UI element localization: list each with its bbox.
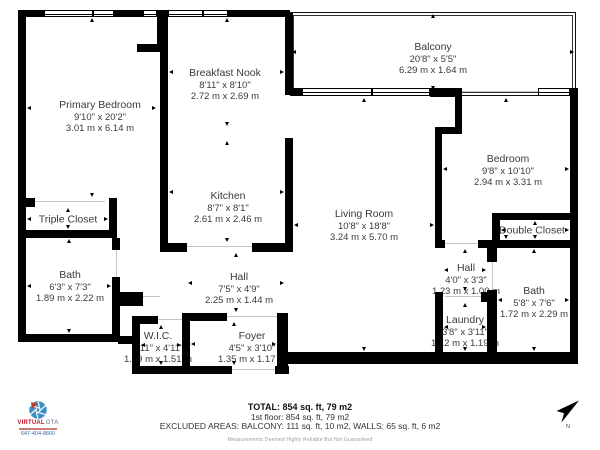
measure-arrow [362,347,366,351]
measure-arrow [498,298,502,302]
measure-arrow [177,343,181,347]
window-divider [202,10,204,17]
floor-plan-page: Primary Bedroom9'10" x 20'2"3.01 m x 6.1… [0,0,600,450]
wall [435,292,443,354]
measure-arrow [159,361,163,365]
measure-arrow [234,253,238,257]
logo-phone-number: 647-404-8800 [12,431,64,437]
wall [182,313,227,321]
measure-arrow [431,14,435,18]
wall [442,127,462,134]
measure-arrow [533,235,537,239]
room-text: 2.61 m x 2.46 m [194,214,262,226]
window-glass [302,88,430,96]
wall [115,292,143,306]
measure-arrow [280,190,284,194]
wall [290,88,302,96]
measure-arrow [280,70,284,74]
door-opening [462,91,538,92]
measure-arrow [443,167,447,171]
summary-footer: TOTAL: 854 sq. ft, 79 m2 1st floor: 854 … [0,403,600,443]
measure-arrow [27,106,31,110]
room-text: 9'10" x 20'2" [59,111,141,123]
door-opening [158,319,182,320]
wall [112,238,120,250]
room-text: 1.72 m x 2.29 m [500,309,568,321]
measure-arrow [504,235,508,239]
measure-arrow [169,190,173,194]
wall [132,316,158,324]
room-text: 4'0" x 3'3" [432,274,500,286]
measure-arrow [362,98,366,102]
measure-arrow [294,223,298,227]
room-text: Bath [36,270,104,282]
measure-arrow [532,347,536,351]
room-text: 8'11" x 8'10" [189,79,261,91]
wall [487,248,497,262]
measure-arrow [107,284,111,288]
measure-arrow [463,287,467,291]
room-label-bath-1: Bath6'3" x 7'3"1.89 m x 2.22 m [36,270,104,305]
measure-arrow [504,98,508,102]
window-glass [143,10,157,17]
wall [182,313,190,374]
wall [18,10,26,342]
measure-arrow [191,342,195,346]
measure-arrow [272,342,276,346]
room-text: 2.25 m x 1.44 m [205,295,273,307]
wall [18,334,120,342]
logo-brand-secondary: GTA [46,420,59,426]
measure-arrow [431,86,435,90]
measure-arrow [67,239,71,243]
door-opening [232,369,275,370]
measure-arrow [104,217,108,221]
room-label-foyer: Foyer4'5" x 3'10"1.35 m x 1.17 m [218,331,286,366]
room-text: 5'8" x 7'6" [500,297,568,309]
measure-arrow [141,343,145,347]
door-opening [116,250,117,277]
measure-arrow [169,70,173,74]
room-label-living-room: Living Room10'8" x 18'8"3.24 m x 5.70 m [330,209,398,244]
measure-arrow [225,238,229,242]
logo-brand-primary: VIRTUAL [17,420,44,426]
measure-arrow [67,329,71,333]
measure-arrow [225,122,229,126]
floor-plan-drawing: Primary Bedroom9'10" x 20'2"3.01 m x 6.1… [0,0,600,450]
room-text: Balcony [399,42,467,54]
wall [283,352,578,364]
wall [570,88,578,364]
wall [18,230,117,238]
door-opening [445,243,478,244]
room-label-bedroom: Bedroom9'8" x 10'10"2.94 m x 3.31 m [474,154,542,189]
door-opening [143,296,160,297]
room-text: Living Room [330,209,398,221]
door-opening [492,262,493,290]
measure-arrow [565,228,569,232]
room-label-hall-1: Hall7'5" x 4'9"2.25 m x 1.44 m [205,272,273,307]
measure-arrow [225,18,229,22]
room-text: 3.01 m x 6.14 m [59,123,141,135]
measure-arrow [66,225,70,229]
wall [137,44,168,52]
measure-arrow [90,193,94,197]
door-opening [35,201,105,202]
door-opening [227,316,277,317]
room-text: 2.72 m x 2.69 m [189,91,261,103]
measure-arrow [482,325,486,329]
room-label-breakfast-nook: Breakfast Nook8'11" x 8'10"2.72 m x 2.69… [189,68,261,103]
room-text: 3.24 m x 5.70 m [330,232,398,244]
window-divider [371,88,373,96]
measure-arrow [27,284,31,288]
wall [487,290,497,354]
room-text: 10'8" x 18'8" [330,220,398,232]
room-label-balcony: Balcony20'8" x 5'5"6.29 m x 1.64 m [399,42,467,77]
room-text: 6.29 m x 1.64 m [399,65,467,77]
measure-arrow [188,281,192,285]
wall [25,198,35,207]
logo-tagline-rule [19,428,57,430]
measure-arrow [234,308,238,312]
room-text: Bath [500,286,568,298]
measure-arrow [90,18,94,22]
measure-arrow [482,268,486,272]
room-text: Bedroom [474,154,542,166]
room-text: 2.94 m x 3.31 m [474,177,542,189]
measure-arrow [27,217,31,221]
room-text: 9'8" x 10'10" [474,165,542,177]
measure-arrow [570,50,574,54]
disclaimer-text: Measurements Deemed Highly Reliable But … [0,437,600,443]
measure-arrow [430,223,434,227]
north-label: N [551,424,585,430]
window-divider [92,10,94,17]
wall [228,10,290,17]
measure-arrow [232,361,236,365]
door-opening [445,296,481,297]
wall [435,127,442,248]
wall [160,52,168,252]
measure-arrow [280,281,284,285]
measure-arrow [501,228,505,232]
measure-arrow [565,167,569,171]
room-label-kitchen: Kitchen8'7" x 8'1"2.61 m x 2.46 m [194,191,262,226]
room-text: Hall [432,263,500,275]
room-label-primary-bedroom: Primary Bedroom9'10" x 20'2"3.01 m x 6.1… [59,100,141,135]
north-arrow-icon [556,399,580,424]
measure-arrow [66,208,70,212]
measure-arrow [565,298,569,302]
wall [163,243,187,252]
room-text: Hall [205,272,273,284]
measure-arrow [463,303,467,307]
company-logo: VIRTUALGTA 647-404-8800 [12,400,64,437]
window-glass [168,10,228,17]
room-text: Primary Bedroom [59,100,141,112]
window-glass [44,10,114,17]
room-text: Kitchen [194,191,262,203]
wall [435,240,445,248]
measure-arrow [292,50,296,54]
room-text: 7'5" x 4'9" [205,283,273,295]
north-arrow: N [551,399,585,430]
door-opening [187,246,252,247]
room-text: 6'3" x 7'3" [36,281,104,293]
wall [277,313,288,373]
measure-arrow [463,347,467,351]
window-glass [538,88,570,96]
measure-arrow [463,249,467,253]
room-text: 20'8" x 5'5" [399,53,467,65]
room-text: 8'7" x 8'1" [194,202,262,214]
measure-arrow [232,322,236,326]
excluded-areas-text: EXCLUDED AREAS: BALCONY: 111 sq. ft, 10 … [0,422,600,432]
wall [285,138,293,247]
room-label-double-closet: Double Closet [499,225,565,237]
wall [492,213,578,220]
measure-arrow [444,325,448,329]
room-text: 1.89 m x 2.22 m [36,293,104,305]
room-text: Breakfast Nook [189,68,261,80]
logo-wordmark: VIRTUALGTA [12,420,64,427]
measure-arrow [532,249,536,253]
room-text: 1.35 m x 1.17 m [218,354,286,366]
measure-arrow [444,268,448,272]
measure-arrow [225,141,229,145]
measure-arrow [533,221,537,225]
wall [132,366,232,374]
measure-arrow [152,106,156,110]
measure-arrow [159,325,163,329]
room-label-bath-2: Bath5'8" x 7'6"1.72 m x 2.29 m [500,286,568,321]
room-text: Double Closet [499,225,565,237]
wall [114,10,143,17]
wall [285,13,293,95]
camera-shutter-icon [28,400,48,420]
